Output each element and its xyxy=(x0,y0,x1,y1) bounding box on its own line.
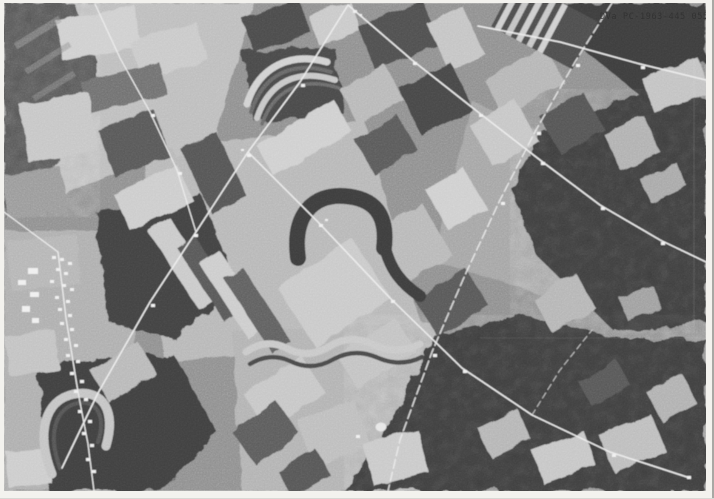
screenshot-root: DVa PC-1963-445 055 xyxy=(0,0,714,499)
photo-grain-overlay xyxy=(4,3,706,491)
photo-stamp: DVa PC-1963-445 055 xyxy=(600,12,706,22)
aerial-photo: DVa PC-1963-445 055 xyxy=(4,3,706,491)
